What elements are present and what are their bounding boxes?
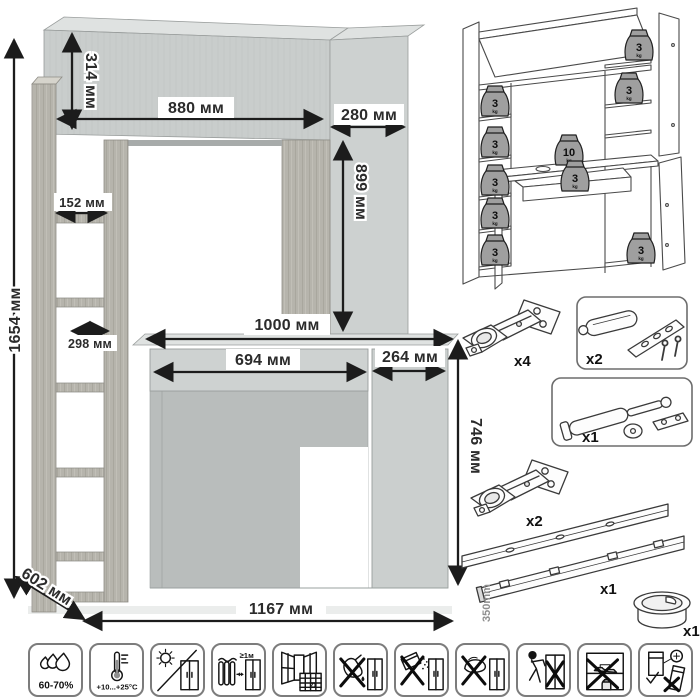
hardware-fittings: x4 x2	[440, 288, 700, 643]
hardware-hinge-x2: x2	[471, 460, 568, 530]
icon-keep-away-from-heat: ≥1м	[211, 643, 266, 697]
icon-humidity-range: 60-70%	[28, 643, 83, 697]
care-icon-row: 60-70% +10...+25°C	[28, 643, 700, 699]
water-drops-icon	[40, 653, 69, 670]
cabinet-icon	[180, 660, 197, 689]
load-capacity-diagram: 3 kg 3 kg 3 kg 3 kg 3 kg 3 kg 3 kg 10	[455, 5, 700, 300]
hardware-hinge-x4: x4	[463, 300, 560, 370]
svg-text:kg: kg	[492, 258, 498, 263]
icon-avoid-direct-sunlight	[150, 643, 205, 697]
svg-text:kg: kg	[492, 188, 498, 193]
slide-length-label: 350mm	[481, 584, 493, 622]
dim-overall-width: 1167 мм	[249, 601, 313, 618]
grommet-x1-qty: x1	[683, 623, 700, 640]
icon-temperature-range: +10...+25°C	[89, 643, 144, 697]
x-mark	[401, 657, 422, 684]
assembly-spec-sheet: 1654 мм 314 мм 880 мм 280 мм 899 мм 152 …	[0, 0, 700, 700]
dim-shelf-depth: 298 мм	[68, 337, 112, 351]
dim-shelf-opening-width: 152 мм	[59, 195, 105, 210]
svg-text:kg: kg	[492, 221, 498, 226]
distance-arrows-icon	[237, 672, 244, 676]
radiator-icon	[218, 658, 235, 684]
person-icon	[529, 651, 545, 681]
sun-icon	[156, 649, 173, 666]
svg-text:kg: kg	[636, 53, 642, 58]
svg-text:kg: kg	[492, 150, 498, 155]
icon-do-not-drag	[516, 643, 571, 697]
cabinet-icon	[489, 658, 503, 689]
icon-anchor-to-wall	[638, 643, 693, 697]
cabinet-icon	[428, 658, 442, 689]
svg-text:kg: kg	[572, 184, 578, 189]
svg-text:kg: kg	[626, 96, 632, 101]
dim-upper-cabinet-width: 280 мм	[341, 107, 397, 124]
slash-line	[157, 650, 195, 690]
temperature-label: +10...+25°C	[96, 682, 137, 691]
thermometer-icon	[111, 652, 127, 680]
furniture-dimension-drawing: 1654 мм 314 мм 880 мм 280 мм 899 мм 152 …	[0, 0, 480, 650]
slides-x1-qty: x1	[600, 581, 617, 598]
days-label: 21	[310, 682, 316, 688]
hinge-x2-qty: x2	[526, 513, 543, 530]
dim-lower-cabinet-width: 264 мм	[382, 349, 438, 366]
dim-desktop-width: 1000 мм	[254, 317, 319, 334]
svg-text:kg: kg	[638, 256, 644, 261]
hardware-cable-grommet: x1	[634, 592, 700, 640]
hardware-damper-x2: x2	[577, 297, 687, 369]
distance-label: ≥1м	[239, 651, 253, 660]
x-mark	[340, 658, 363, 685]
cabinet-icon	[245, 659, 259, 689]
icon-no-scouring-tools	[455, 643, 510, 697]
humidity-label: 60-70%	[38, 680, 73, 691]
dim-top-section-width: 880 мм	[168, 100, 224, 117]
cabinet-icon	[367, 658, 381, 689]
dim-overall-height: 1654 мм	[7, 287, 24, 352]
icon-do-not-overload	[577, 643, 632, 697]
svg-text:kg: kg	[492, 109, 498, 114]
icon-no-abrasive-powders	[394, 643, 449, 697]
dim-upper-cabinet-height: 899 мм	[352, 164, 369, 220]
icon-acclimatize-21-days: 21	[272, 643, 327, 697]
dim-drawer-width: 694 мм	[235, 352, 291, 369]
damper-x2-qty: x2	[586, 351, 603, 368]
hinge-x4-qty: x4	[514, 353, 531, 370]
dim-top-section-height: 314 мм	[82, 53, 99, 109]
hardware-gas-lift-x1: x1	[552, 378, 692, 446]
icon-no-aggressive-liquids	[333, 643, 388, 697]
gas-lift-x1-qty: x1	[582, 429, 599, 446]
